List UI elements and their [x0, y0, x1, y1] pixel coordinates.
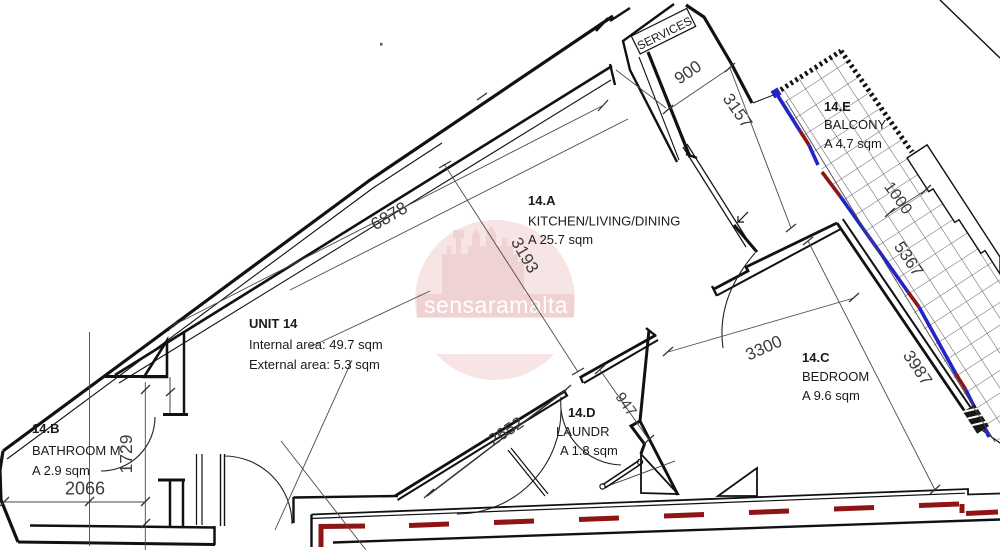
- svg-text:14.D: 14.D: [568, 405, 595, 420]
- svg-text:14.A: 14.A: [528, 193, 556, 208]
- svg-text:BEDROOM: BEDROOM: [802, 369, 869, 384]
- svg-text:A 4.7 sqm: A 4.7 sqm: [824, 136, 882, 151]
- svg-text:External area: 5.3 sqm: External area: 5.3 sqm: [249, 357, 380, 372]
- svg-text:14.E: 14.E: [824, 99, 851, 114]
- svg-text:UNIT 14: UNIT 14: [249, 316, 298, 331]
- svg-text:A 25.7 sqm: A 25.7 sqm: [528, 232, 593, 247]
- svg-text:2066: 2066: [65, 479, 105, 499]
- svg-text:A 1.8 sqm: A 1.8 sqm: [560, 443, 618, 458]
- svg-text:Internal area: 49.7 sqm: Internal area: 49.7 sqm: [249, 337, 383, 352]
- svg-text:14.B: 14.B: [32, 421, 59, 436]
- svg-text:BALCONY: BALCONY: [824, 117, 886, 132]
- svg-text:A 2.9 sqm: A 2.9 sqm: [32, 463, 90, 478]
- svg-text:sensaramalta: sensaramalta: [424, 292, 568, 318]
- svg-text:BATHROOM M: BATHROOM M: [32, 443, 121, 458]
- svg-text:14.C: 14.C: [802, 350, 830, 365]
- svg-text:A 9.6 sqm: A 9.6 sqm: [802, 388, 860, 403]
- svg-text:LAUNDR: LAUNDR: [556, 424, 609, 439]
- svg-text:KITCHEN/LIVING/DINING: KITCHEN/LIVING/DINING: [528, 214, 680, 229]
